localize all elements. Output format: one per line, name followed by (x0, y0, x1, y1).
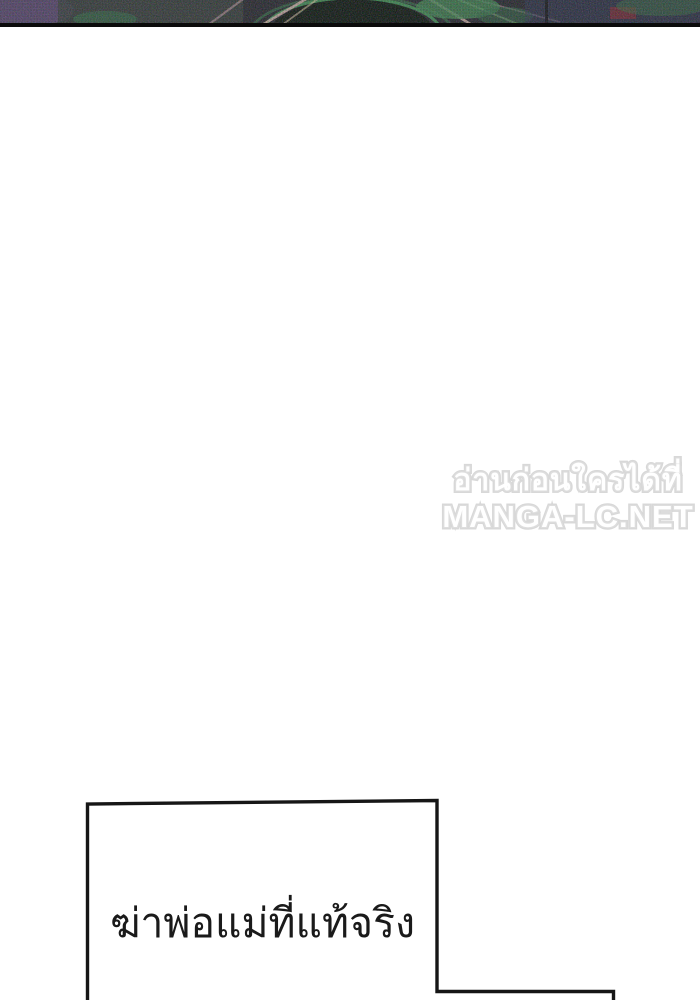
site-watermark: อ่านก่อนใครได้ที่ MANGA-LC.NET (428, 462, 700, 534)
panel-bottom-border (0, 23, 700, 27)
speech-text: ฆ่าพ่อแม่ที่แท้จริง (88, 893, 437, 953)
watermark-thai-text: อ่านก่อนใครได้ที่ (428, 462, 700, 500)
manga-page: อ่านก่อนใครได้ที่ MANGA-LC.NET ฆ่าพ่อแม่… (0, 0, 700, 1000)
manga-panel-art-fragment (0, 0, 700, 27)
panel-art-canvas (0, 0, 700, 23)
watermark-site-name: MANGA-LC.NET (428, 500, 700, 534)
